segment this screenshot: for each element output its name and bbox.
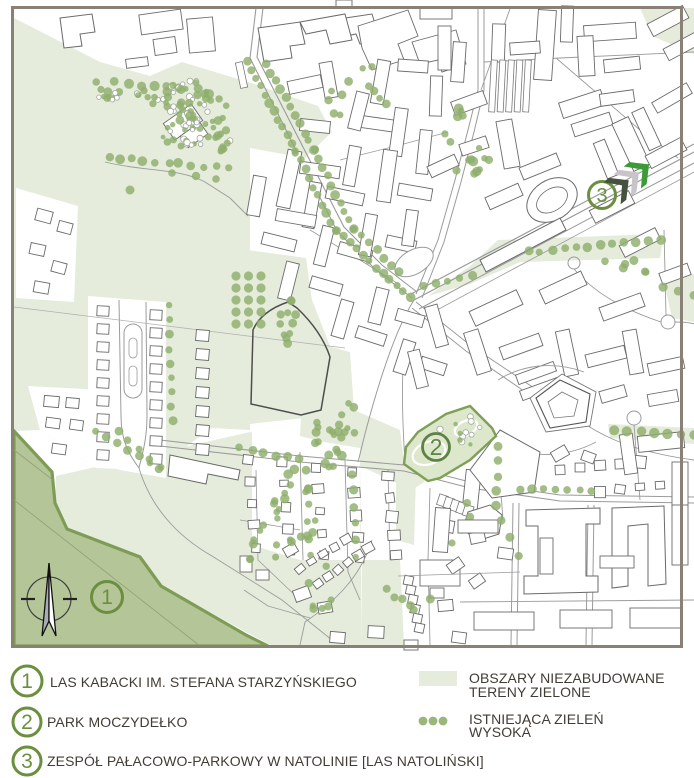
svg-text:PARK MOCZYDEŁKO: PARK MOCZYDEŁKO bbox=[47, 714, 188, 730]
svg-text:TERENY ZIELONE: TERENY ZIELONE bbox=[469, 684, 591, 700]
svg-text:WYSOKA: WYSOKA bbox=[469, 724, 532, 740]
svg-text:2: 2 bbox=[430, 434, 443, 460]
svg-text:1: 1 bbox=[21, 670, 33, 693]
svg-text:3: 3 bbox=[21, 750, 33, 773]
svg-text:ZESPÓŁ PAŁACOWO-PARKOWY W NATO: ZESPÓŁ PAŁACOWO-PARKOWY W NATOLINIE [LAS… bbox=[47, 753, 484, 769]
svg-text:LAS KABACKI IM. STEFANA STARZY: LAS KABACKI IM. STEFANA STARZYŃSKIEGO bbox=[50, 674, 357, 690]
svg-text:1: 1 bbox=[101, 586, 113, 609]
svg-text:2: 2 bbox=[21, 711, 33, 734]
svg-text:3: 3 bbox=[596, 185, 607, 207]
